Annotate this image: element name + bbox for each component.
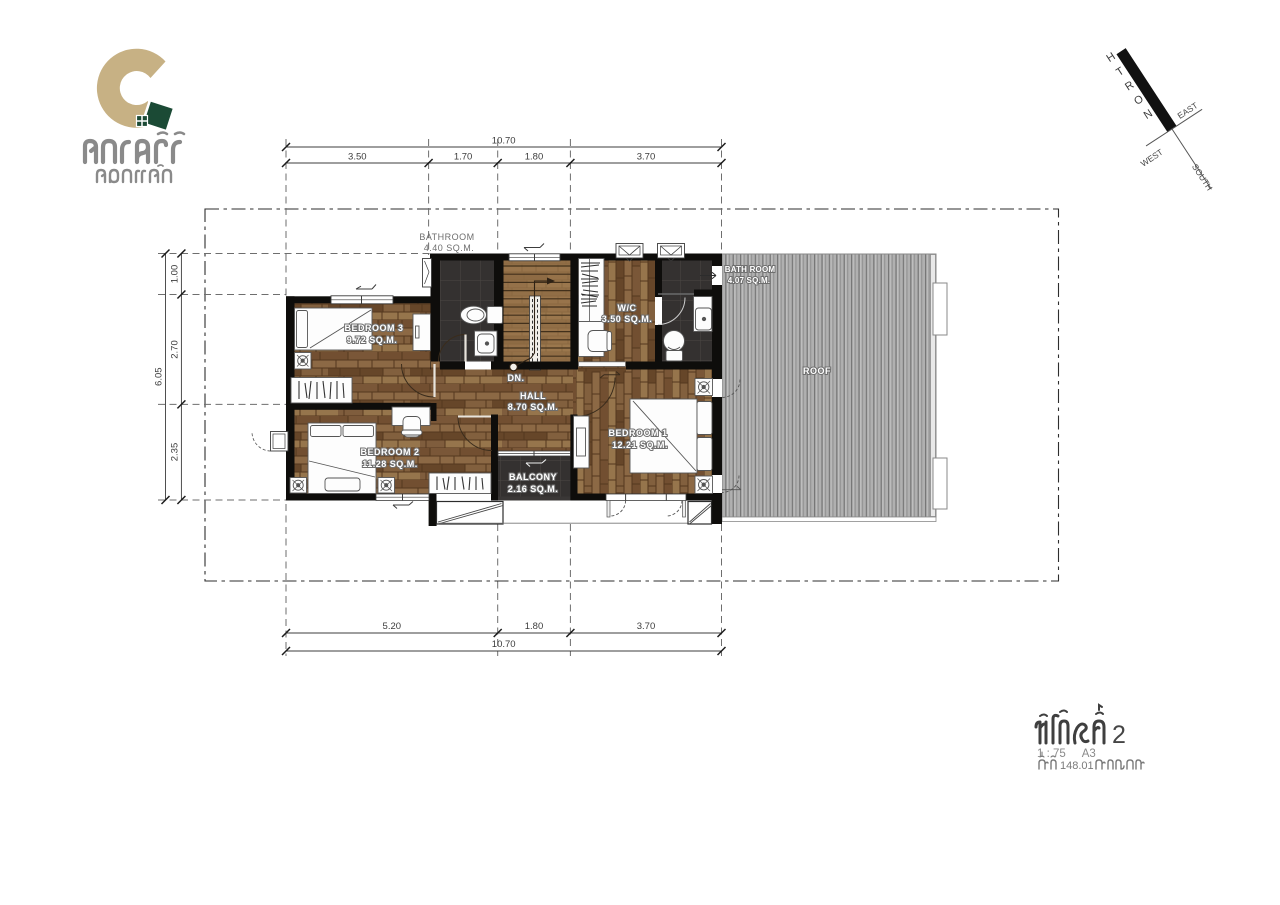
svg-text:SOUTH: SOUTH (1190, 162, 1215, 192)
svg-text:EAST: EAST (1175, 100, 1199, 121)
svg-text:ROOF: ROOF (803, 366, 831, 376)
svg-text:3.70: 3.70 (637, 621, 656, 632)
svg-text:T: T (1114, 65, 1126, 79)
svg-text:1.70: 1.70 (454, 152, 473, 163)
svg-text:1.80: 1.80 (525, 621, 544, 632)
svg-text:BEDROOM 2: BEDROOM 2 (360, 447, 419, 457)
svg-text:DN.: DN. (508, 373, 525, 383)
svg-text:1.80: 1.80 (525, 152, 544, 163)
svg-text:4.40 SQ.M.: 4.40 SQ.M. (424, 243, 475, 253)
svg-text:2.35: 2.35 (170, 443, 181, 462)
svg-text:3.50: 3.50 (348, 152, 367, 163)
svg-text:HALL: HALL (520, 391, 546, 401)
svg-text:5.20: 5.20 (383, 621, 402, 632)
svg-text:WEST: WEST (1139, 147, 1165, 169)
svg-text:2.70: 2.70 (170, 340, 181, 359)
svg-text:148.01: 148.01 (1060, 760, 1094, 772)
svg-text:10.70: 10.70 (492, 639, 516, 650)
svg-text:8.70 SQ.M.: 8.70 SQ.M. (508, 402, 559, 412)
svg-text:10.70: 10.70 (492, 136, 516, 147)
svg-text:4.07 SQ.M.: 4.07 SQ.M. (728, 276, 770, 285)
svg-text:3.50 SQ.M.: 3.50 SQ.M. (602, 314, 653, 324)
svg-text:2.16 SQ.M.: 2.16 SQ.M. (508, 484, 559, 494)
svg-text:BALCONY: BALCONY (509, 472, 557, 482)
svg-text:BEDROOM 3: BEDROOM 3 (344, 323, 403, 333)
svg-text:11.28 SQ.M.: 11.28 SQ.M. (362, 459, 418, 469)
svg-text:H: H (1104, 51, 1117, 65)
svg-text:6.05: 6.05 (154, 367, 165, 386)
svg-text:BATH ROOM: BATH ROOM (725, 265, 776, 274)
svg-text:1.00: 1.00 (170, 265, 181, 284)
svg-text:2: 2 (1112, 721, 1126, 749)
svg-text:12.21 SQ.M.: 12.21 SQ.M. (612, 440, 668, 450)
svg-text:W/C: W/C (618, 303, 637, 313)
svg-text:9.72 SQ.M.: 9.72 SQ.M. (347, 335, 398, 345)
svg-text:BEDROOM 1: BEDROOM 1 (608, 428, 667, 438)
svg-text:3.70: 3.70 (637, 152, 656, 163)
svg-text:1 : 75 A3: 1 : 75 A3 (1037, 748, 1096, 760)
svg-text:BATHROOM: BATHROOM (419, 232, 474, 242)
